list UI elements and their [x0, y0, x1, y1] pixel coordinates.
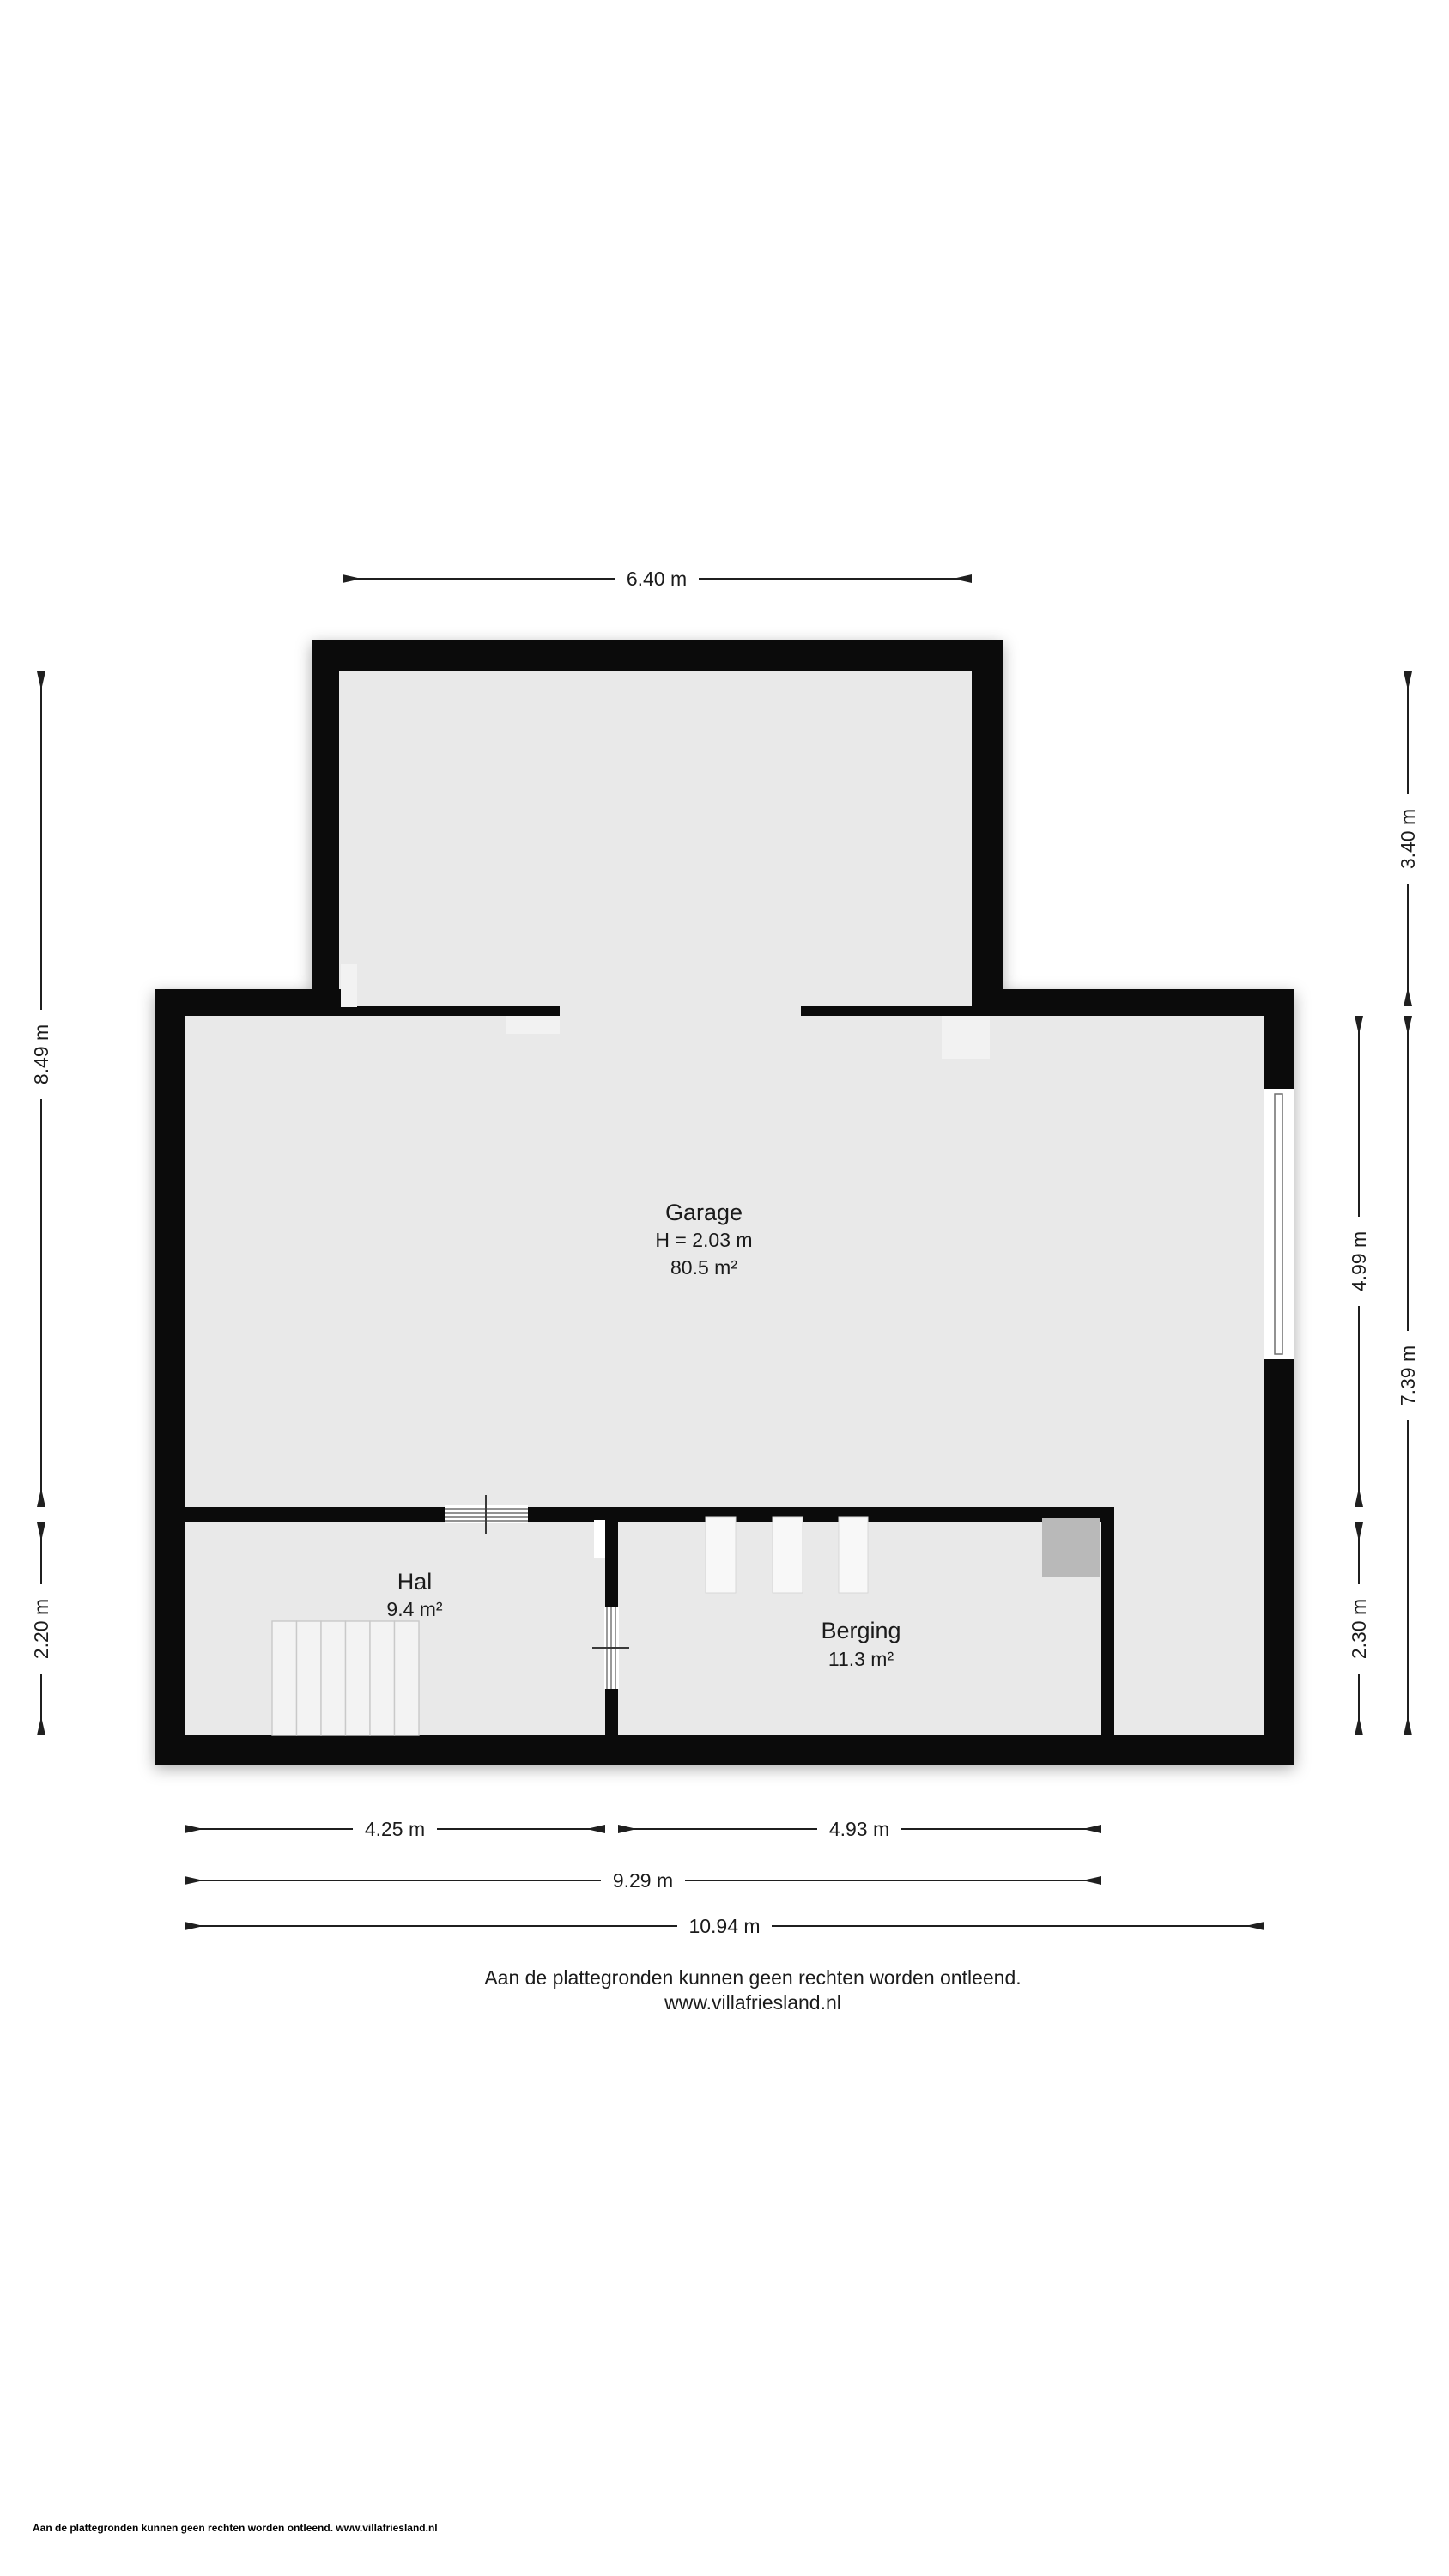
berging-area-label: 11.3 m² — [828, 1648, 894, 1670]
exterior-wall-left — [155, 989, 185, 1765]
dim-label-right-garage: 4.99 m — [1348, 1231, 1370, 1291]
wall-niche-hal — [594, 1520, 605, 1558]
stair-tread — [272, 1621, 297, 1735]
website-text: www.villafriesland.nl — [664, 1991, 841, 2014]
exterior-wall-extension-left — [312, 640, 339, 989]
hal-room-label: Hal — [397, 1569, 433, 1595]
pilaster-extension-left — [341, 964, 357, 1007]
stair-tread — [395, 1621, 420, 1735]
exterior-wall-extension-right — [972, 640, 1003, 989]
pier-opening-right — [942, 1016, 990, 1059]
exterior-wall-extension-top — [312, 640, 1003, 671]
berging-room-label: Berging — [821, 1618, 900, 1643]
garage-area-label: 80.5 m² — [670, 1256, 737, 1279]
garage-height-label: H = 2.03 m — [655, 1229, 752, 1251]
dim-label-bottom-berging: 4.93 m — [829, 1818, 889, 1840]
dim-label-bottom-hal: 4.25 m — [365, 1818, 425, 1840]
stair-tread — [346, 1621, 371, 1735]
interior-wall-berging-right — [1101, 1507, 1114, 1735]
berging-wall-slot — [773, 1517, 803, 1593]
garage-opening-ledge-left — [339, 1006, 560, 1016]
window-glass — [1275, 1094, 1282, 1354]
dim-label-right-lower: 2.30 m — [1348, 1599, 1370, 1659]
fixture-gray-square — [1042, 1518, 1100, 1577]
garage-extension-floor — [339, 671, 972, 1016]
dim-label-top: 6.40 m — [627, 568, 687, 590]
staircase — [272, 1621, 419, 1735]
dim-label-right-extension: 3.40 m — [1397, 809, 1419, 869]
footer: Aan de plattegronden kunnen geen rechten… — [33, 1966, 1022, 2534]
small-print-text: Aan de plattegronden kunnen geen rechten… — [33, 2522, 438, 2534]
interior-wall-garage-hal-berging — [185, 1507, 1114, 1522]
dim-label-bottom-total: 10.94 m — [688, 1915, 760, 1937]
berging-wall-slot — [706, 1517, 736, 1593]
garage-opening-ledge-right — [801, 1006, 972, 1016]
dim-label-bottom-inner: 9.29 m — [613, 1869, 673, 1892]
exterior-wall-top-right-segment — [972, 989, 1294, 1016]
floorplan-page: 6.40 m 8.49 m 2.20 m 3.40 m 4.99 m 2.30 … — [0, 0, 1449, 2576]
pier-opening-left — [506, 1016, 560, 1034]
floorplan-svg: 6.40 m 8.49 m 2.20 m 3.40 m 4.99 m 2.30 … — [0, 0, 1449, 2576]
dim-label-right-total: 7.39 m — [1397, 1346, 1419, 1406]
hal-area-label: 9.4 m² — [386, 1598, 443, 1620]
dim-label-left-lower: 2.20 m — [30, 1599, 52, 1659]
exterior-wall-bottom — [155, 1735, 1294, 1765]
window-right-wall — [1264, 1089, 1294, 1359]
stair-tread — [370, 1621, 395, 1735]
berging-wall-slot — [839, 1517, 868, 1593]
dim-label-left-upper: 8.49 m — [30, 1024, 52, 1084]
garage-room-label: Garage — [665, 1200, 743, 1225]
stair-tread — [321, 1621, 346, 1735]
disclaimer-text: Aan de plattegronden kunnen geen rechten… — [484, 1966, 1021, 1989]
stair-tread — [297, 1621, 322, 1735]
